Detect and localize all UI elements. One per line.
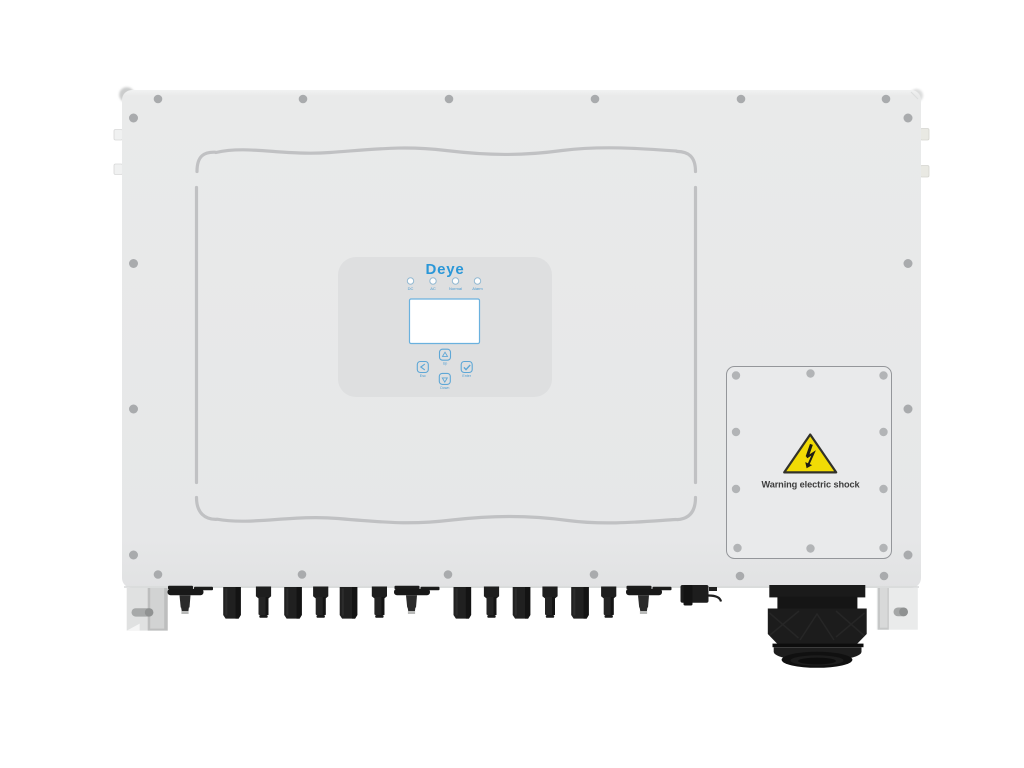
svg-text:DC: DC [408,286,414,291]
svg-text:Enter: Enter [462,374,471,378]
svg-text:Down: Down [440,386,449,390]
svg-text:Esc: Esc [420,374,426,378]
svg-text:Warning electric shock: Warning electric shock [761,480,860,490]
svg-text:Alarm: Alarm [472,286,483,291]
svg-text:Up: Up [443,362,448,366]
svg-text:Deye: Deye [425,261,464,278]
svg-text:Normal: Normal [449,286,462,291]
svg-text:AC: AC [430,286,436,291]
